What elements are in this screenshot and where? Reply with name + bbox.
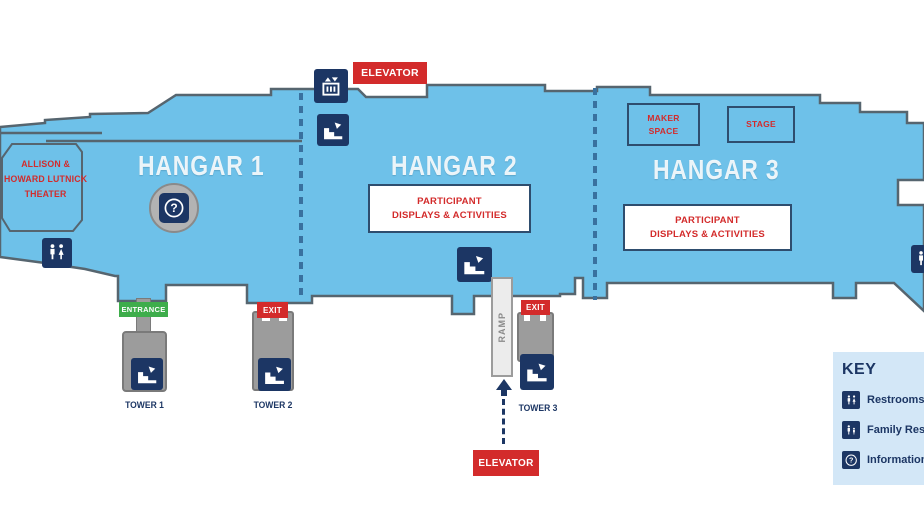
hangar-1-label: HANGAR 1 bbox=[138, 150, 264, 182]
entrance-badge: ENTRANCE bbox=[119, 302, 168, 317]
elevator-top-badge: ELEVATOR bbox=[353, 62, 427, 84]
information-icon: ? bbox=[842, 451, 860, 469]
stairs-icon bbox=[457, 247, 492, 282]
hangar2-participant-displays-box: PARTICIPANT DISPLAYS & ACTIVITIES bbox=[368, 184, 531, 233]
key-label-family-restrooms: Family Restrooms bbox=[867, 424, 924, 436]
tower-1-label: TOWER 1 bbox=[115, 400, 174, 411]
tower-3-label: TOWER 3 bbox=[510, 403, 566, 414]
information-icon: ? bbox=[149, 183, 199, 233]
key-row-family-restrooms: Family Restrooms bbox=[842, 421, 924, 439]
key-label-information: Information bbox=[867, 454, 924, 466]
key-title: KEY bbox=[842, 361, 924, 379]
ramp-label: RAMP bbox=[497, 312, 507, 343]
ramp: RAMP bbox=[491, 277, 513, 377]
stage-box: STAGE bbox=[727, 106, 795, 143]
svg-text:?: ? bbox=[849, 455, 853, 464]
exit-badge: EXIT bbox=[257, 302, 288, 318]
venue-deck-map: HANGAR 1 HANGAR 2 HANGAR 3 ALLISON & HOW… bbox=[0, 0, 924, 520]
stairs-icon bbox=[520, 354, 554, 390]
elevator-icon bbox=[314, 69, 348, 103]
hangar-2-label: HANGAR 2 bbox=[391, 150, 517, 182]
hangar3-participant-displays-box: PARTICIPANT DISPLAYS & ACTIVITIES bbox=[623, 204, 792, 251]
exit-badge: EXIT bbox=[521, 300, 550, 315]
key-row-information: ? Information bbox=[842, 451, 924, 469]
svg-text:?: ? bbox=[170, 201, 177, 215]
hangar-3-label: HANGAR 3 bbox=[653, 154, 779, 186]
map-key-panel: KEY Restrooms Family Restrooms ? Informa… bbox=[833, 352, 924, 485]
stairs-icon bbox=[258, 358, 291, 391]
key-row-restrooms: Restrooms bbox=[842, 391, 924, 409]
elevator-bottom-badge: ELEVATOR bbox=[473, 450, 539, 476]
tower-2-label: TOWER 2 bbox=[245, 400, 301, 411]
restrooms-icon bbox=[842, 391, 860, 409]
theater-label: ALLISON & HOWARD LUTNICK THEATER bbox=[0, 157, 91, 202]
elevator-route-dashed-line bbox=[502, 399, 505, 444]
family-restroom-icon bbox=[842, 421, 860, 439]
key-label-restrooms: Restrooms bbox=[867, 394, 924, 406]
stairs-icon bbox=[131, 358, 163, 390]
restrooms-icon bbox=[42, 238, 72, 268]
maker-space-box: MAKER SPACE bbox=[627, 103, 700, 146]
restrooms-icon bbox=[911, 245, 924, 273]
up-arrow-icon bbox=[495, 379, 513, 397]
stairs-icon bbox=[317, 114, 349, 146]
